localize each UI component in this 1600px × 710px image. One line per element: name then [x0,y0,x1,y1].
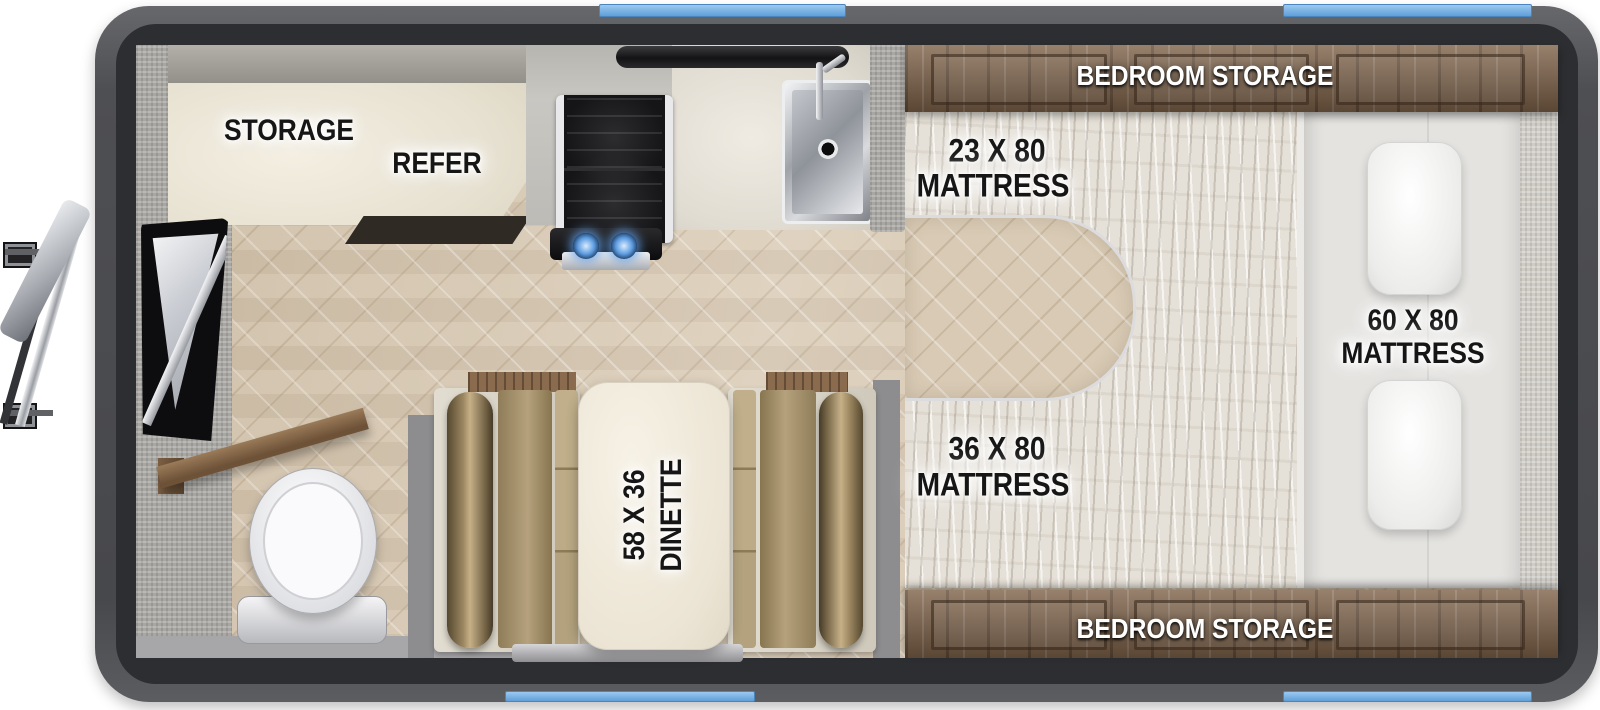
bench-wood-trim [468,372,576,392]
bedroom-right-wall [1520,45,1558,658]
toilet-icon [249,468,377,614]
cabinet-door [1336,54,1525,104]
burner-tray [562,252,650,270]
bedroom-storage-bottom-label: BEDROOM STORAGE [1077,613,1334,645]
mattress-60-word-label: MATTRESS [1341,337,1484,371]
burner-icon [611,233,637,259]
mattress-23-size-label: 23 X 80 [948,133,1045,170]
storage-label: STORAGE [224,114,354,148]
cooktop-divider [564,168,665,171]
bench-bolster [819,392,863,648]
window-strip-top-right [1283,4,1532,17]
dinette-size-label: 58 X 36 [616,459,653,572]
mattress-23-word-label: MATTRESS [917,168,1070,205]
cooktop-icon [556,95,673,243]
counter-backsplash [168,45,526,83]
toilet-seat [263,482,363,600]
mattress-36-size-label: 36 X 80 [948,431,1045,468]
dinette-left-wall [408,415,434,658]
mattress-60-size-label: 60 X 80 [1367,304,1458,338]
overhead-shelf [616,46,849,68]
sink-icon [782,80,873,224]
bench-cushion [760,390,816,648]
bench-cushion [733,390,756,648]
window-strip-top-left [599,4,846,17]
window-strip-bottom-left [505,691,755,702]
dinette-right-wall [873,380,900,658]
dinette-label: 58 X 36 DINETTE [616,459,690,572]
dinette-word-label: DINETTE [653,459,690,572]
bed-trim [1297,112,1304,588]
bench-wood-trim [766,372,848,392]
bench-bolster [447,392,493,648]
refer-label: REFER [392,147,481,181]
under-counter-cabinet [345,216,531,244]
pillow-icon [1367,142,1462,295]
cabinet-door [1336,600,1525,651]
faucet-icon [816,62,823,120]
bench-cushion [555,390,578,648]
pillow-icon [1367,380,1462,530]
left-wall [136,45,168,193]
kitchen-bedroom-wall [870,45,905,232]
bench-cushion [498,390,552,648]
bedroom-aisle-floor [905,215,1136,401]
floorplan-canvas: STORAGE REFER BEDROOM STORAGE BEDROOM ST… [0,0,1600,710]
sink-drain [818,139,838,159]
window-strip-bottom-right [1283,691,1532,702]
bedroom-storage-top-label: BEDROOM STORAGE [1077,60,1334,92]
burner-icon [573,233,599,259]
mattress-36-word-label: MATTRESS [917,467,1070,504]
